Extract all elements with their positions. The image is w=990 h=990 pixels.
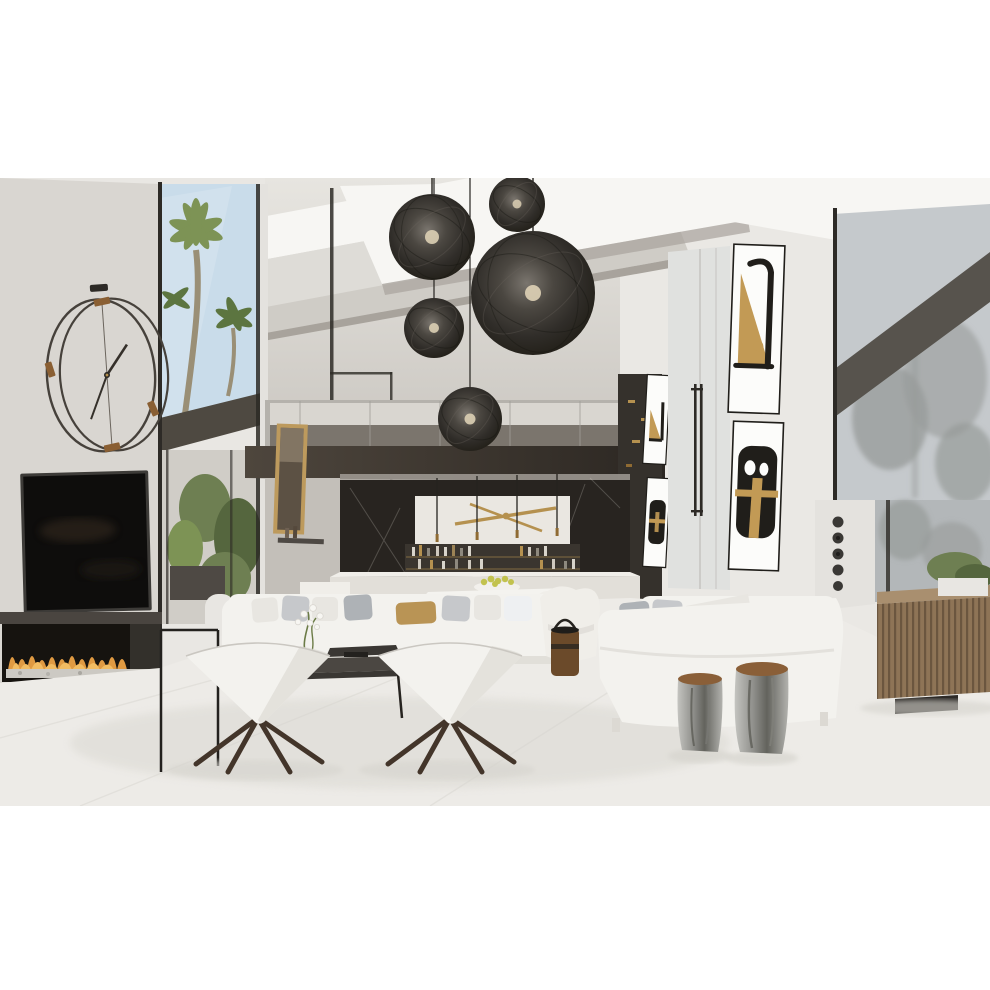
table-tray [344, 652, 368, 657]
artwork-small-top [643, 374, 671, 464]
interior-photo [0, 178, 990, 806]
interior-render [0, 178, 990, 806]
window-frame-right [256, 184, 260, 644]
artwork-large-top [728, 244, 785, 414]
glass-frame [833, 208, 837, 502]
clock-bracket [90, 284, 108, 292]
gold-pillow [395, 601, 436, 625]
right-window-wall [815, 204, 990, 611]
wall-pillar [815, 500, 875, 611]
glass-door [668, 246, 730, 590]
window-frame-left [158, 182, 162, 684]
artwork-small-bottom [643, 477, 671, 567]
screenshot-canvas [0, 0, 990, 990]
bucket-side-table [551, 620, 579, 676]
artwork-large-bottom [728, 421, 783, 571]
wall-tv [20, 470, 152, 613]
